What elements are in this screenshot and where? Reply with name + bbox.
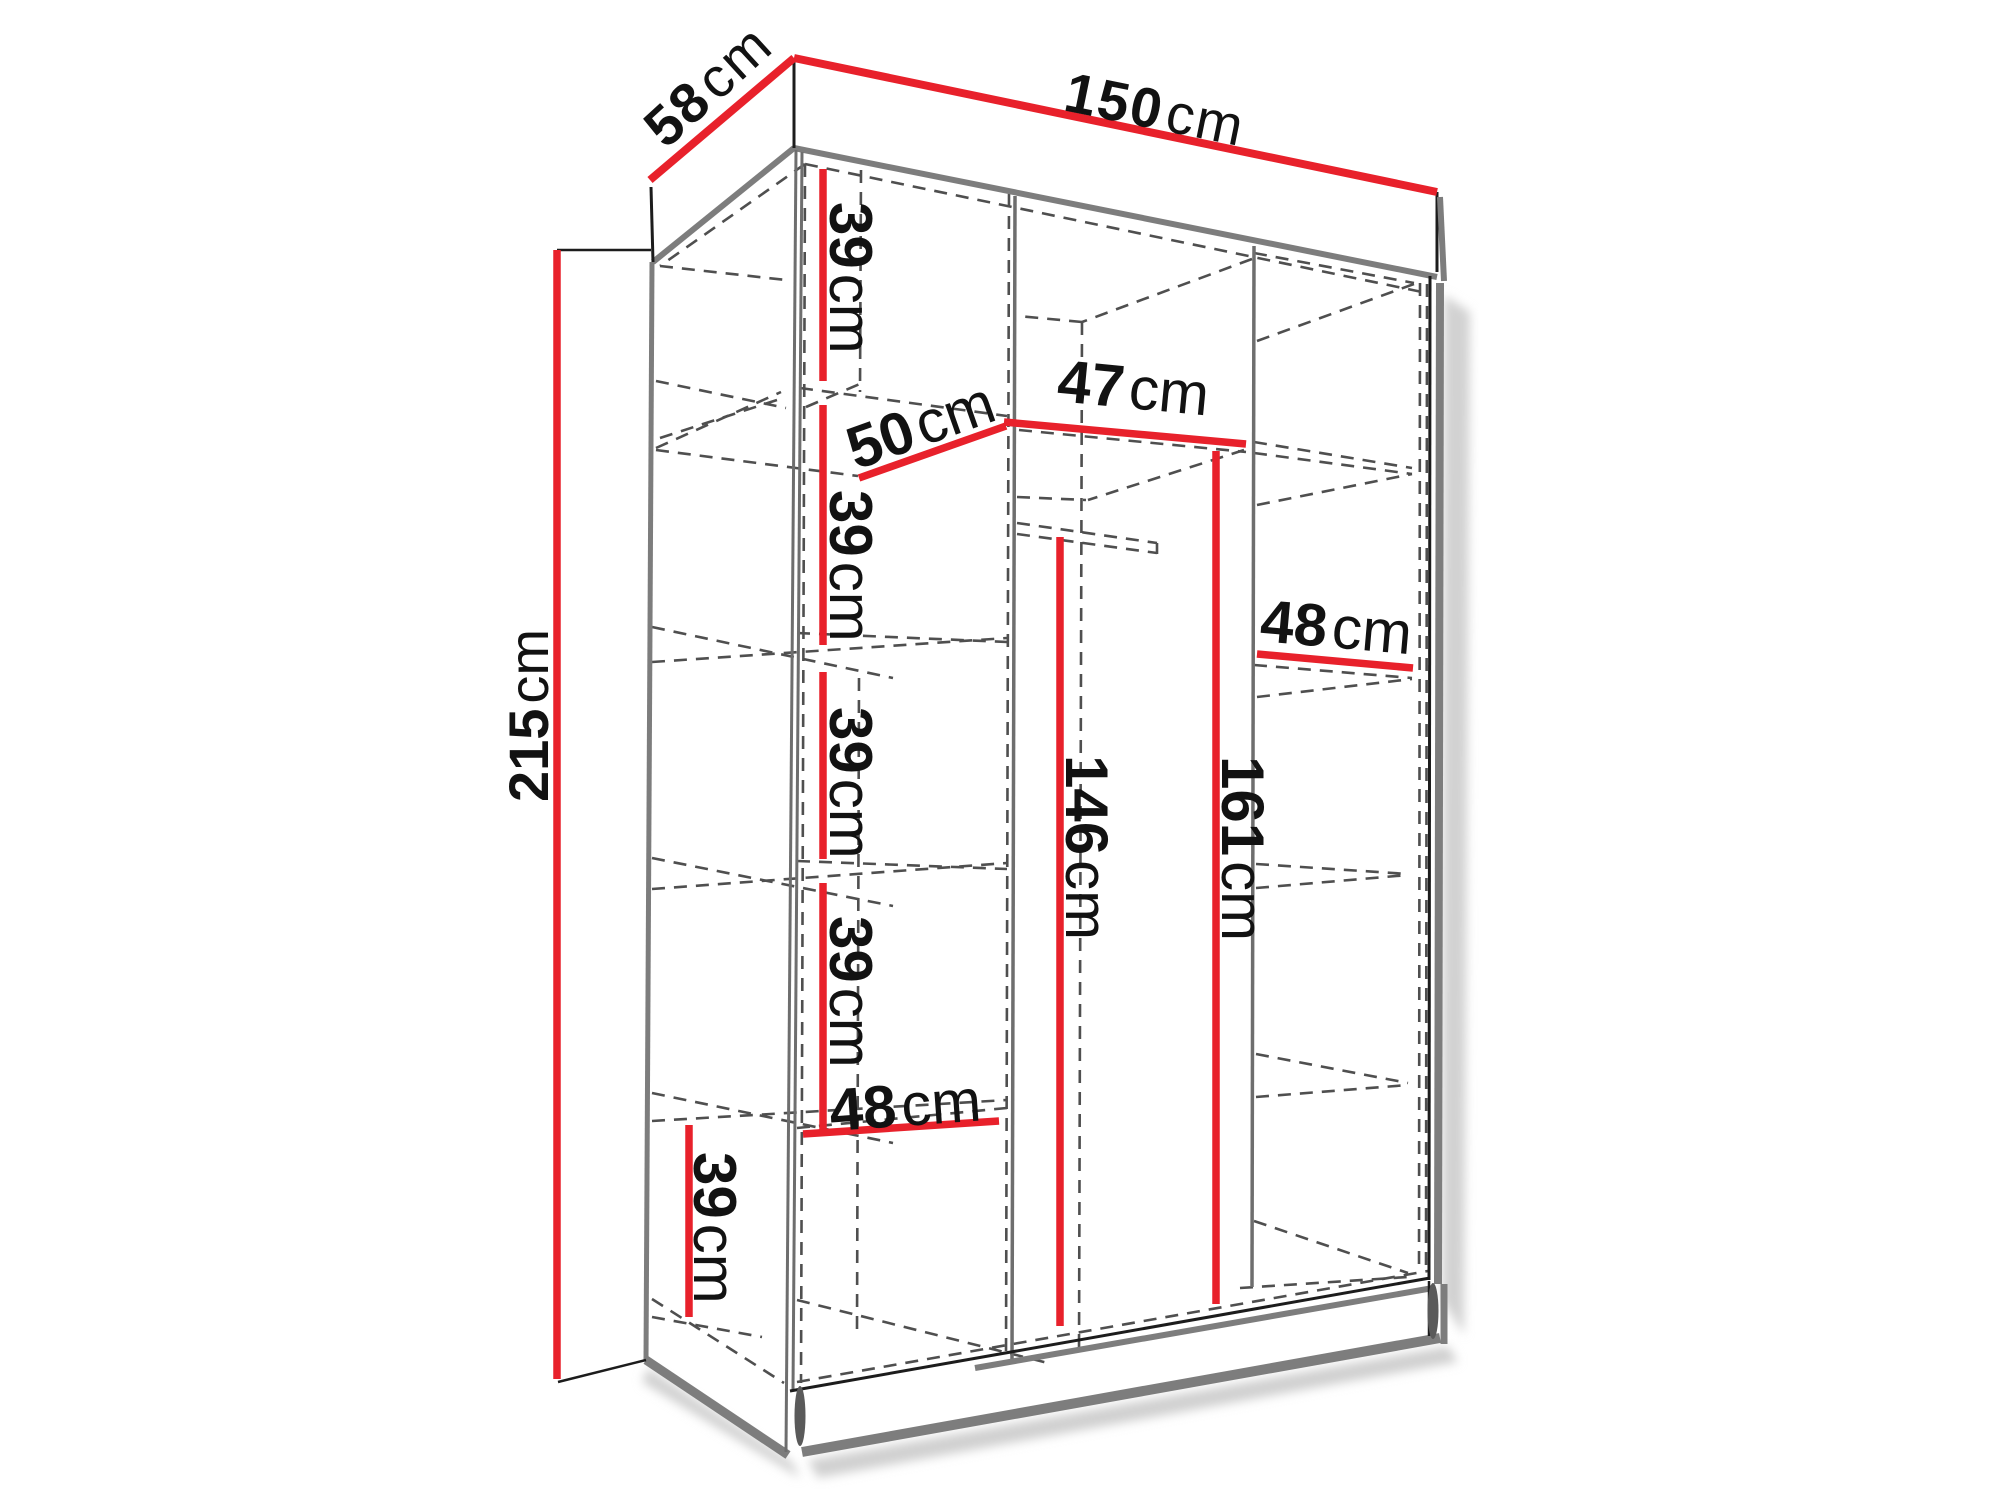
svg-text:215cm: 215cm <box>497 629 560 802</box>
svg-text:161cm: 161cm <box>1209 756 1276 941</box>
svg-text:48cm: 48cm <box>827 1067 983 1144</box>
svg-text:39cm: 39cm <box>817 490 884 642</box>
svg-text:39cm: 39cm <box>817 707 884 859</box>
svg-text:146cm: 146cm <box>1053 755 1120 940</box>
svg-text:39cm: 39cm <box>817 916 884 1068</box>
svg-text:48cm: 48cm <box>1258 587 1415 667</box>
svg-text:39cm: 39cm <box>681 1152 748 1304</box>
svg-text:39cm: 39cm <box>817 202 884 354</box>
